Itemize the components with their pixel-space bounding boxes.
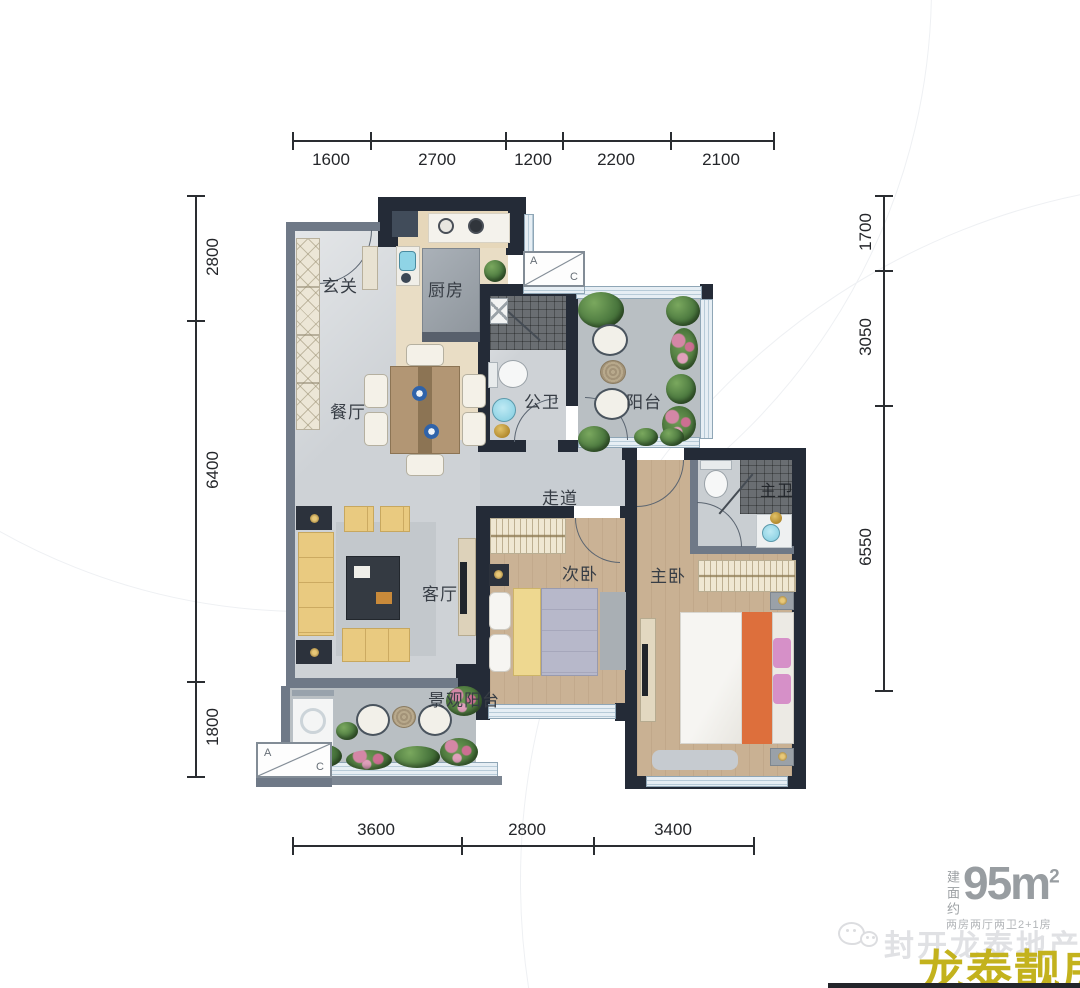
room-label-master-bath: 主卫 [760, 477, 794, 501]
room-label-bedroom2: 次卧 [562, 560, 598, 585]
balcony-table [600, 360, 626, 384]
dim-top-1200: 1200 [503, 150, 563, 170]
entry-shoe-cabinet [362, 246, 378, 290]
kitchen-sink [399, 251, 416, 271]
entry-closet [296, 238, 320, 430]
master-toilet-bowl [704, 470, 728, 498]
bedroom2-blanket-yellow [513, 588, 541, 676]
floorplan-page: 1600 2700 1200 2200 2100 3600 2800 3400 … [0, 0, 1080, 988]
balcony-plant [666, 374, 696, 404]
dimension-tick [875, 405, 893, 407]
living-ottoman [380, 506, 410, 532]
dim-right-3050: 3050 [856, 307, 876, 367]
toilet-bowl [498, 360, 528, 388]
ac-platform-bottom: A C [256, 742, 332, 778]
dim-left-2800: 2800 [203, 227, 223, 287]
living-loveseat [342, 628, 410, 662]
bedroom2-wardrobe [490, 518, 566, 554]
master-pillow-pink [773, 674, 791, 704]
dimension-tick [505, 132, 507, 150]
dimension-tick [187, 776, 205, 778]
wechat-eye [853, 929, 856, 932]
dimension-tick [370, 132, 372, 150]
dim-bottom-3400: 3400 [643, 820, 703, 840]
balcony-plant [660, 428, 684, 446]
wall-bedroom2-bottom-right [615, 703, 630, 721]
view-balcony-plant-flowers [346, 750, 392, 770]
stove-burner [438, 218, 454, 234]
view-balcony-plant [394, 746, 440, 768]
sill-view-balcony [330, 776, 502, 785]
balcony-plant [634, 428, 658, 446]
window-kitchen-right [524, 214, 534, 254]
dimension-tick [773, 132, 775, 150]
balcony-plant [578, 292, 624, 328]
balcony-chair [592, 324, 628, 356]
room-label-view-balcony: 景观阳台 [428, 686, 500, 711]
room-label-corridor: 走道 [542, 484, 578, 509]
wall-bath-right [566, 284, 578, 406]
ac-platform-base [256, 778, 332, 787]
bedroom2-bench [600, 592, 626, 670]
public-bath-cabinet [490, 298, 508, 324]
wechat-eye [866, 936, 869, 939]
ac-label-c: C [570, 271, 578, 283]
dining-chair [462, 374, 486, 408]
wall-bath-bottom-right [558, 440, 578, 452]
lamp [310, 514, 319, 523]
wechat-eye [872, 936, 875, 939]
stove-burner [468, 218, 484, 234]
room-label-entry: 玄关 [322, 272, 358, 297]
wall-kitchen-top [378, 197, 526, 211]
ac-label-a: A [264, 747, 271, 759]
coffee-table-books [354, 566, 370, 578]
living-sofa-long [298, 532, 334, 636]
bedroom2-pillow [489, 592, 511, 630]
wall-master-right [792, 448, 806, 788]
dimension-tick [875, 270, 893, 272]
balcony-plant [666, 296, 700, 326]
view-balcony-chair [356, 704, 390, 736]
view-balcony-table [392, 706, 416, 728]
master-bath-sink [762, 524, 780, 542]
dimension-tick [753, 837, 755, 855]
area-badge-value: 95m2 [963, 856, 1060, 910]
ac-platform-top: A C [523, 251, 585, 287]
dim-top-1600: 1600 [301, 150, 361, 170]
master-tv-screen [642, 644, 648, 696]
coffee-table-books [376, 592, 392, 604]
area-value-text: 95m [963, 857, 1049, 909]
wechat-eye [846, 929, 849, 932]
wall-left-exterior [286, 222, 295, 688]
master-bed-duvet [680, 612, 742, 744]
dimension-tick [875, 690, 893, 692]
view-balcony-plant-flowers [440, 738, 478, 766]
view-balcony-plant [336, 722, 358, 740]
dimension-tick [187, 320, 205, 322]
dim-left-1800: 1800 [203, 697, 223, 757]
bedroom2-duvet [541, 588, 598, 676]
kitchen-fridge [392, 211, 418, 237]
living-ottoman [344, 506, 374, 532]
ac-label-c: C [316, 761, 324, 773]
ac-label-a: A [530, 255, 537, 267]
balcony-plant [578, 426, 610, 452]
window-master-bottom [646, 776, 788, 787]
dimension-tick [187, 681, 205, 683]
dim-right-6550: 6550 [856, 517, 876, 577]
master-pillow-pink [773, 638, 791, 668]
dining-chair [364, 374, 388, 408]
dining-chair [406, 344, 444, 366]
washer-door [300, 708, 326, 734]
view-balcony-shelf [292, 690, 334, 696]
dimension-tick [292, 132, 294, 150]
wechat-bubble-small [860, 931, 878, 947]
dimension-tick [593, 837, 595, 855]
bedroom2-pillow [489, 634, 511, 672]
dimension-tick [187, 195, 205, 197]
dim-right-1700: 1700 [856, 202, 876, 262]
lamp [310, 648, 319, 657]
dimension-line-left [195, 195, 197, 776]
dimension-line-bottom [292, 845, 753, 847]
wall-master-top-right [684, 448, 805, 460]
dim-bottom-3600: 3600 [346, 820, 406, 840]
area-value-sup: 2 [1049, 867, 1060, 888]
dimension-tick [875, 195, 893, 197]
tv-screen [460, 562, 467, 614]
public-bath-plant [494, 424, 510, 438]
kitchen-plant [484, 260, 506, 282]
dim-top-2100: 2100 [691, 150, 751, 170]
dining-chair [462, 412, 486, 446]
dim-left-6400: 6400 [203, 440, 223, 500]
dimension-tick [670, 132, 672, 150]
dining-chair [406, 454, 444, 476]
lamp [494, 570, 503, 579]
room-label-dining: 餐厅 [330, 398, 366, 423]
window-ac-hatch [523, 286, 585, 294]
kitchen-kettle [401, 273, 411, 283]
window-balcony-right [700, 299, 713, 439]
lamp [778, 752, 787, 761]
area-badge-prefix: 建面约 [946, 870, 962, 922]
room-label-kitchen: 厨房 [428, 276, 464, 301]
balcony-chair [594, 388, 630, 420]
bottom-edge-line [828, 983, 1080, 988]
room-label-balcony: 阳台 [626, 388, 662, 413]
dimension-tick [562, 132, 564, 150]
wechat-icon [838, 920, 884, 956]
dimension-line-top [292, 140, 773, 142]
dining-chair [364, 412, 388, 446]
window-bedroom2-bottom [488, 704, 616, 719]
dining-table-runner [418, 366, 432, 454]
master-wardrobe [698, 560, 796, 592]
dimension-tick [461, 837, 463, 855]
dim-top-2200: 2200 [586, 150, 646, 170]
balcony-plant-flowers [670, 328, 698, 370]
room-label-public-bath: 公卫 [524, 388, 560, 413]
dining-plate [424, 424, 439, 439]
master-rug [652, 750, 738, 770]
dim-top-2700: 2700 [407, 150, 467, 170]
dim-bottom-2800: 2800 [497, 820, 557, 840]
brand-text: 龙泰靓房 [918, 936, 1080, 988]
master-bath-plant [770, 512, 782, 524]
lamp [778, 596, 787, 605]
room-label-living: 客厅 [422, 580, 458, 605]
public-bath-sink [492, 398, 516, 422]
wall-island-bottom [422, 332, 480, 342]
wall-master-top-left [622, 448, 637, 460]
master-bed-blanket-orange [742, 612, 772, 744]
dimension-tick [292, 837, 294, 855]
master-toilet-tank [700, 460, 732, 470]
dining-plate [412, 386, 427, 401]
room-label-master: 主卧 [650, 562, 686, 587]
toilet-tank [488, 362, 498, 388]
wall-bedroom2-top-right [620, 506, 630, 518]
